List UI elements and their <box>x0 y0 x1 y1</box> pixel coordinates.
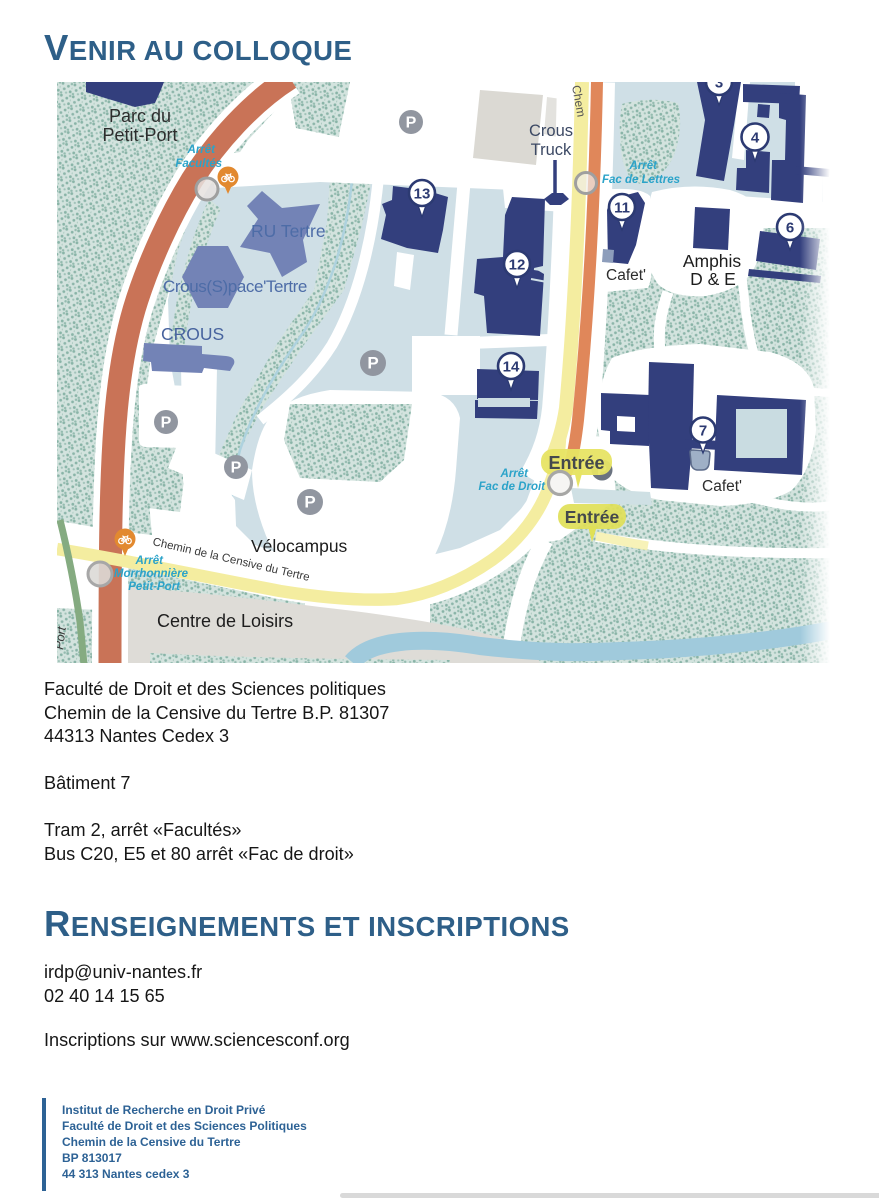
svg-text:Cafet': Cafet' <box>702 478 742 495</box>
svg-text:Centre de Loisirs: Centre de Loisirs <box>157 611 293 631</box>
svg-text:11: 11 <box>614 200 630 217</box>
svg-text:Morrhonnière: Morrhonnière <box>114 568 189 580</box>
svg-text:12: 12 <box>509 257 526 274</box>
svg-text:Crous(S)pace'Tertre: Crous(S)pace'Tertre <box>163 277 307 296</box>
svg-text:Fac de Lettres: Fac de Lettres <box>602 174 680 186</box>
svg-text:7: 7 <box>699 423 707 440</box>
svg-text:Cafet': Cafet' <box>606 267 646 284</box>
svg-text:P: P <box>367 354 378 373</box>
svg-text:Fac de Droit: Fac de Droit <box>479 481 547 493</box>
svg-text:Entrée: Entrée <box>548 453 604 473</box>
svg-text:RU Tertre: RU Tertre <box>251 221 326 241</box>
svg-text:P: P <box>304 493 315 512</box>
svg-text:4: 4 <box>751 130 760 147</box>
svg-text:Petit-Port: Petit-Port <box>102 125 177 145</box>
svg-text:Petit-Port: Petit-Port <box>128 581 181 593</box>
svg-text:Crous: Crous <box>529 122 573 140</box>
svg-text:Truck: Truck <box>531 141 572 159</box>
svg-text:Facultés: Facultés <box>175 158 222 170</box>
svg-text:Vélocampus: Vélocampus <box>251 536 348 556</box>
svg-text:D & E: D & E <box>690 269 736 289</box>
svg-text:P: P <box>231 460 242 477</box>
svg-text:Amphis: Amphis <box>683 251 742 271</box>
svg-text:Arrêt: Arrêt <box>629 160 659 172</box>
svg-text:Arrêt: Arrêt <box>187 144 217 156</box>
svg-text:14: 14 <box>503 359 520 376</box>
svg-text:P: P <box>161 415 172 432</box>
svg-text:Arrêt: Arrêt <box>135 555 165 567</box>
svg-text:CROUS: CROUS <box>161 324 224 344</box>
svg-text:13: 13 <box>414 186 431 203</box>
svg-text:Entrée: Entrée <box>565 507 620 527</box>
svg-text:Parc du: Parc du <box>109 106 171 126</box>
svg-text:P: P <box>406 115 417 132</box>
svg-text:6: 6 <box>786 220 794 237</box>
svg-text:3: 3 <box>715 82 723 92</box>
svg-text:Arrêt: Arrêt <box>500 468 530 480</box>
